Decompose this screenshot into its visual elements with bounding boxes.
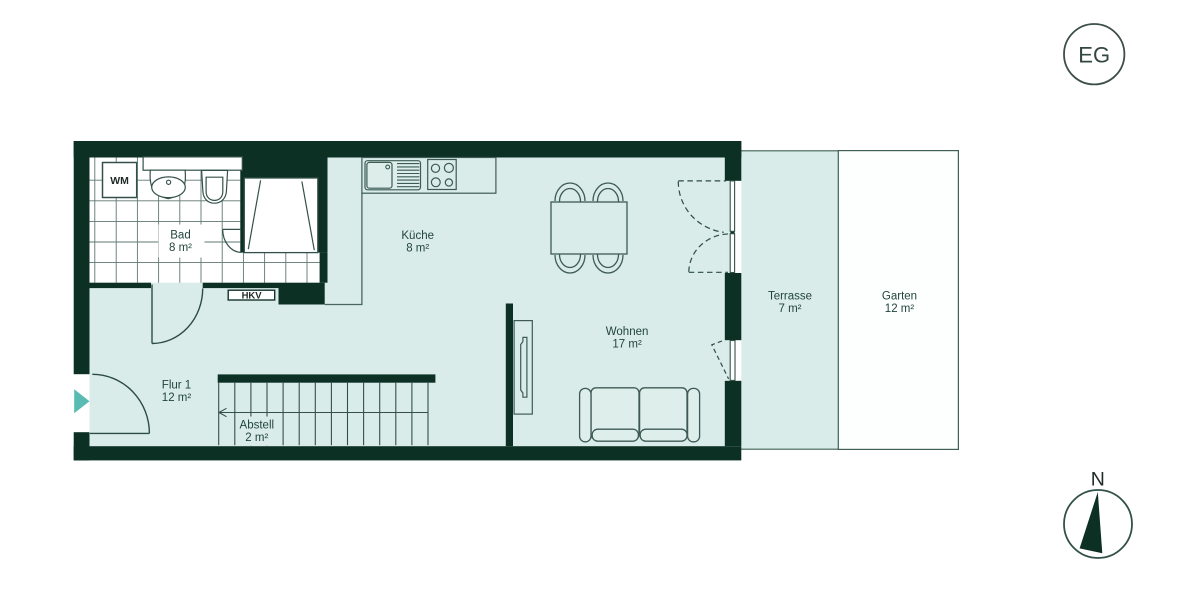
svg-text:12 m²: 12 m² <box>162 392 192 404</box>
svg-text:Bad: Bad <box>170 230 190 242</box>
svg-text:8 m²: 8 m² <box>169 242 192 254</box>
svg-text:WM: WM <box>110 175 129 187</box>
svg-text:Wohnen: Wohnen <box>606 326 649 338</box>
svg-text:7 m²: 7 m² <box>779 303 802 315</box>
svg-text:Flur 1: Flur 1 <box>162 379 191 391</box>
svg-text:N: N <box>1091 469 1105 491</box>
svg-text:EG: EG <box>1078 42 1110 67</box>
svg-text:2 m²: 2 m² <box>245 432 268 444</box>
svg-text:Abstell: Abstell <box>240 420 275 432</box>
svg-text:HKV: HKV <box>242 290 263 301</box>
svg-text:Garten: Garten <box>882 291 917 303</box>
svg-text:Terrasse: Terrasse <box>768 291 812 303</box>
svg-text:12 m²: 12 m² <box>885 303 915 315</box>
svg-text:Küche: Küche <box>401 230 434 242</box>
svg-text:8 m²: 8 m² <box>406 242 429 254</box>
svg-text:17 m²: 17 m² <box>612 338 642 350</box>
